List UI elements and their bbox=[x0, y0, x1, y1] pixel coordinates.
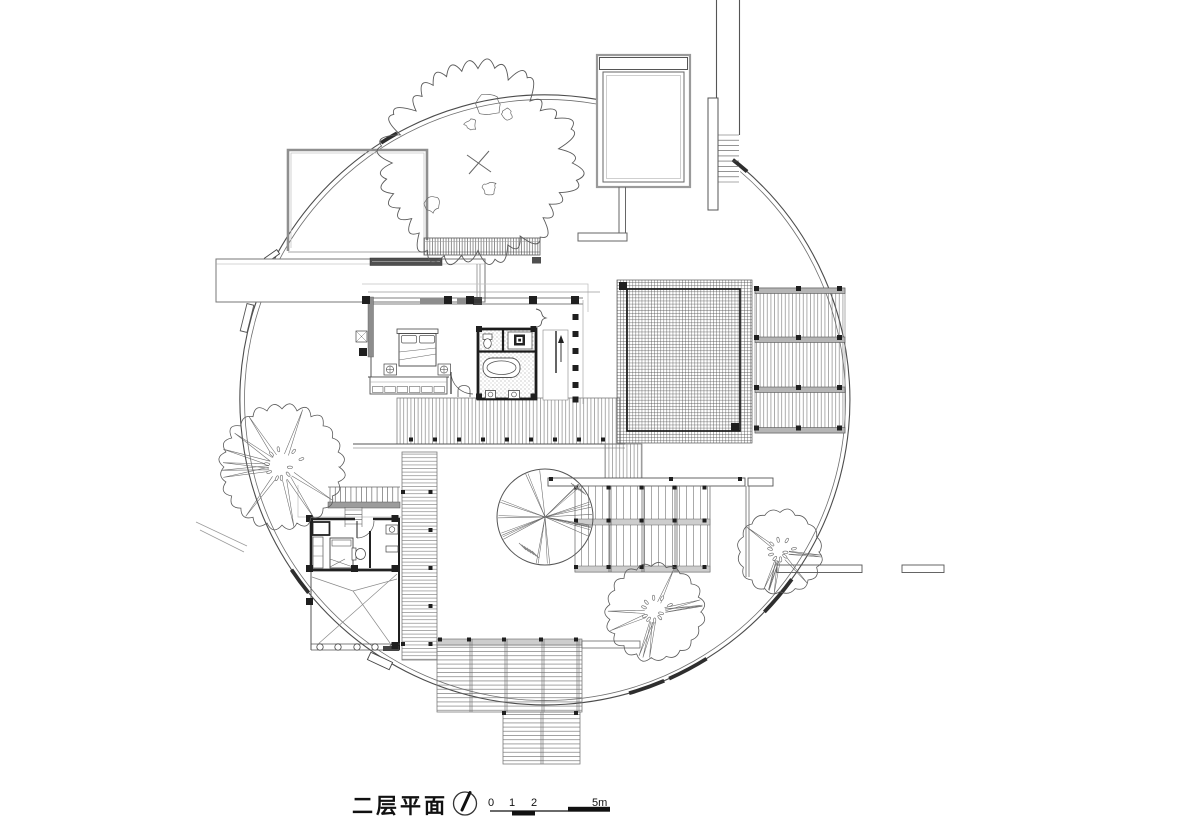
column-node bbox=[573, 314, 579, 320]
column-node bbox=[438, 638, 442, 642]
column-node bbox=[703, 486, 707, 490]
column-node bbox=[796, 286, 801, 291]
entry-path-north bbox=[708, 0, 740, 210]
bathroom-master bbox=[478, 329, 536, 399]
column-node bbox=[362, 296, 370, 304]
column-node bbox=[673, 486, 677, 490]
rail-end-block bbox=[532, 257, 541, 264]
column-node bbox=[359, 348, 367, 356]
column-node bbox=[392, 565, 399, 572]
stair-guest-treads bbox=[330, 487, 398, 502]
nightstand-left bbox=[384, 364, 397, 375]
column-node bbox=[531, 394, 537, 400]
column-node bbox=[529, 296, 537, 304]
site-circle-thick-segment bbox=[669, 659, 707, 679]
column-node bbox=[429, 490, 433, 494]
column-node bbox=[754, 385, 759, 390]
column-node bbox=[444, 296, 452, 304]
sink-left bbox=[486, 391, 496, 399]
column-node bbox=[539, 638, 543, 642]
boardwalk-vertical bbox=[402, 452, 437, 660]
scale-label-0: 0 bbox=[488, 797, 494, 809]
column-node bbox=[573, 382, 579, 388]
column-node bbox=[502, 711, 506, 715]
closet-shelves bbox=[313, 537, 323, 568]
column-node bbox=[574, 638, 578, 642]
deck-bottom-extension bbox=[503, 712, 580, 764]
sink-right bbox=[509, 391, 520, 399]
column-node bbox=[502, 638, 506, 642]
column-node bbox=[466, 296, 474, 304]
north-arrow-icon bbox=[454, 792, 477, 815]
column-node bbox=[577, 438, 581, 442]
path-steps-ne bbox=[718, 135, 739, 182]
planter-strip bbox=[424, 238, 540, 255]
column-node bbox=[401, 490, 405, 494]
column-node bbox=[401, 642, 405, 646]
plan-title: 二层平面 bbox=[352, 795, 448, 818]
scale-bar: 0 1 2 5m bbox=[488, 797, 610, 816]
column-node bbox=[796, 335, 801, 340]
column-node bbox=[640, 486, 644, 490]
bed-guest bbox=[330, 538, 353, 568]
bed-master bbox=[397, 329, 438, 366]
column-node bbox=[573, 348, 579, 354]
scale-label-1: 1 bbox=[509, 797, 515, 809]
guest-toilet bbox=[352, 548, 366, 560]
title-block: 二层平面 0 1 2 5m bbox=[352, 792, 610, 818]
column-node bbox=[529, 438, 533, 442]
column-node bbox=[673, 519, 677, 523]
tree-palm bbox=[219, 404, 345, 530]
column-node bbox=[429, 528, 433, 532]
column-node bbox=[669, 477, 673, 481]
tree-center-mark bbox=[467, 151, 491, 174]
column-node bbox=[703, 565, 707, 569]
column-node bbox=[573, 397, 579, 403]
column-node bbox=[481, 438, 485, 442]
column-node bbox=[392, 515, 399, 522]
tree-deciduous bbox=[377, 59, 584, 265]
deck-band-below-house bbox=[353, 398, 625, 448]
column-node bbox=[306, 565, 313, 572]
duct-closet bbox=[313, 522, 330, 535]
column-node bbox=[574, 565, 578, 569]
column-node bbox=[607, 565, 611, 569]
column-node bbox=[754, 335, 759, 340]
wardrobe bbox=[370, 377, 447, 394]
arch-niche bbox=[458, 386, 470, 398]
column-node bbox=[573, 331, 579, 337]
column-node bbox=[409, 438, 413, 442]
column-node bbox=[531, 326, 537, 332]
column-node bbox=[505, 438, 509, 442]
column-node bbox=[429, 566, 433, 570]
column-node bbox=[607, 519, 611, 523]
column-node bbox=[601, 438, 605, 442]
bathtub bbox=[483, 358, 520, 378]
column-node bbox=[467, 638, 471, 642]
column-node bbox=[306, 515, 313, 522]
deck-bottom bbox=[437, 639, 640, 712]
column-node bbox=[553, 438, 557, 442]
shower bbox=[508, 332, 532, 349]
column-node bbox=[571, 296, 579, 304]
floorplan-drawing: 二层平面 0 1 2 5m bbox=[0, 0, 1200, 832]
column-node bbox=[549, 477, 553, 481]
column-node bbox=[429, 604, 433, 608]
site-circle-thick-segment bbox=[292, 570, 309, 593]
column-node bbox=[457, 438, 461, 442]
column-node bbox=[754, 426, 759, 431]
upper-pavilion bbox=[578, 55, 690, 241]
column-node bbox=[754, 286, 759, 291]
column-node bbox=[731, 423, 739, 431]
column-node bbox=[837, 335, 842, 340]
column-node bbox=[574, 519, 578, 523]
site-path-lines-sw bbox=[196, 522, 247, 552]
nightstand-right bbox=[438, 364, 451, 375]
stair-guest-rail bbox=[328, 502, 400, 508]
column-node bbox=[476, 394, 482, 400]
floor-plan-page: 二层平面 0 1 2 5m bbox=[0, 0, 1200, 832]
column-node bbox=[392, 642, 399, 649]
deck-middle-stepped bbox=[575, 486, 710, 572]
column-node bbox=[619, 282, 627, 290]
door-guest bbox=[357, 521, 374, 538]
staircase-main bbox=[543, 330, 568, 400]
deck-east-trellis bbox=[755, 288, 845, 433]
column-node bbox=[640, 519, 644, 523]
bridge-walkway-nw bbox=[216, 252, 541, 305]
column-node bbox=[837, 385, 842, 390]
roof-fold-lines bbox=[312, 574, 397, 645]
column-node bbox=[738, 477, 742, 481]
column-node bbox=[796, 426, 801, 431]
deck-connector-walkway bbox=[605, 444, 642, 480]
door-curtain-symbol bbox=[536, 309, 546, 327]
pergola-canopy-grid bbox=[617, 280, 752, 443]
column-node bbox=[796, 385, 801, 390]
guest-sink bbox=[386, 525, 398, 534]
site-benches-east bbox=[777, 565, 944, 573]
scale-label-2: 2 bbox=[531, 797, 537, 809]
column-node bbox=[476, 326, 482, 332]
column-node bbox=[573, 365, 579, 371]
column-node bbox=[574, 711, 578, 715]
column-node bbox=[433, 438, 437, 442]
site-circle-gates bbox=[196, 250, 393, 670]
guest-shelf bbox=[386, 546, 398, 552]
column-node bbox=[607, 486, 611, 490]
site-circle-thick-segment bbox=[733, 160, 747, 172]
column-node bbox=[837, 426, 842, 431]
column-node bbox=[837, 286, 842, 291]
column-node bbox=[351, 565, 358, 572]
toilet bbox=[483, 334, 492, 348]
site-circle-thick-segment bbox=[764, 579, 791, 612]
column-node bbox=[429, 642, 433, 646]
column-node bbox=[306, 598, 313, 605]
column-node bbox=[703, 519, 707, 523]
